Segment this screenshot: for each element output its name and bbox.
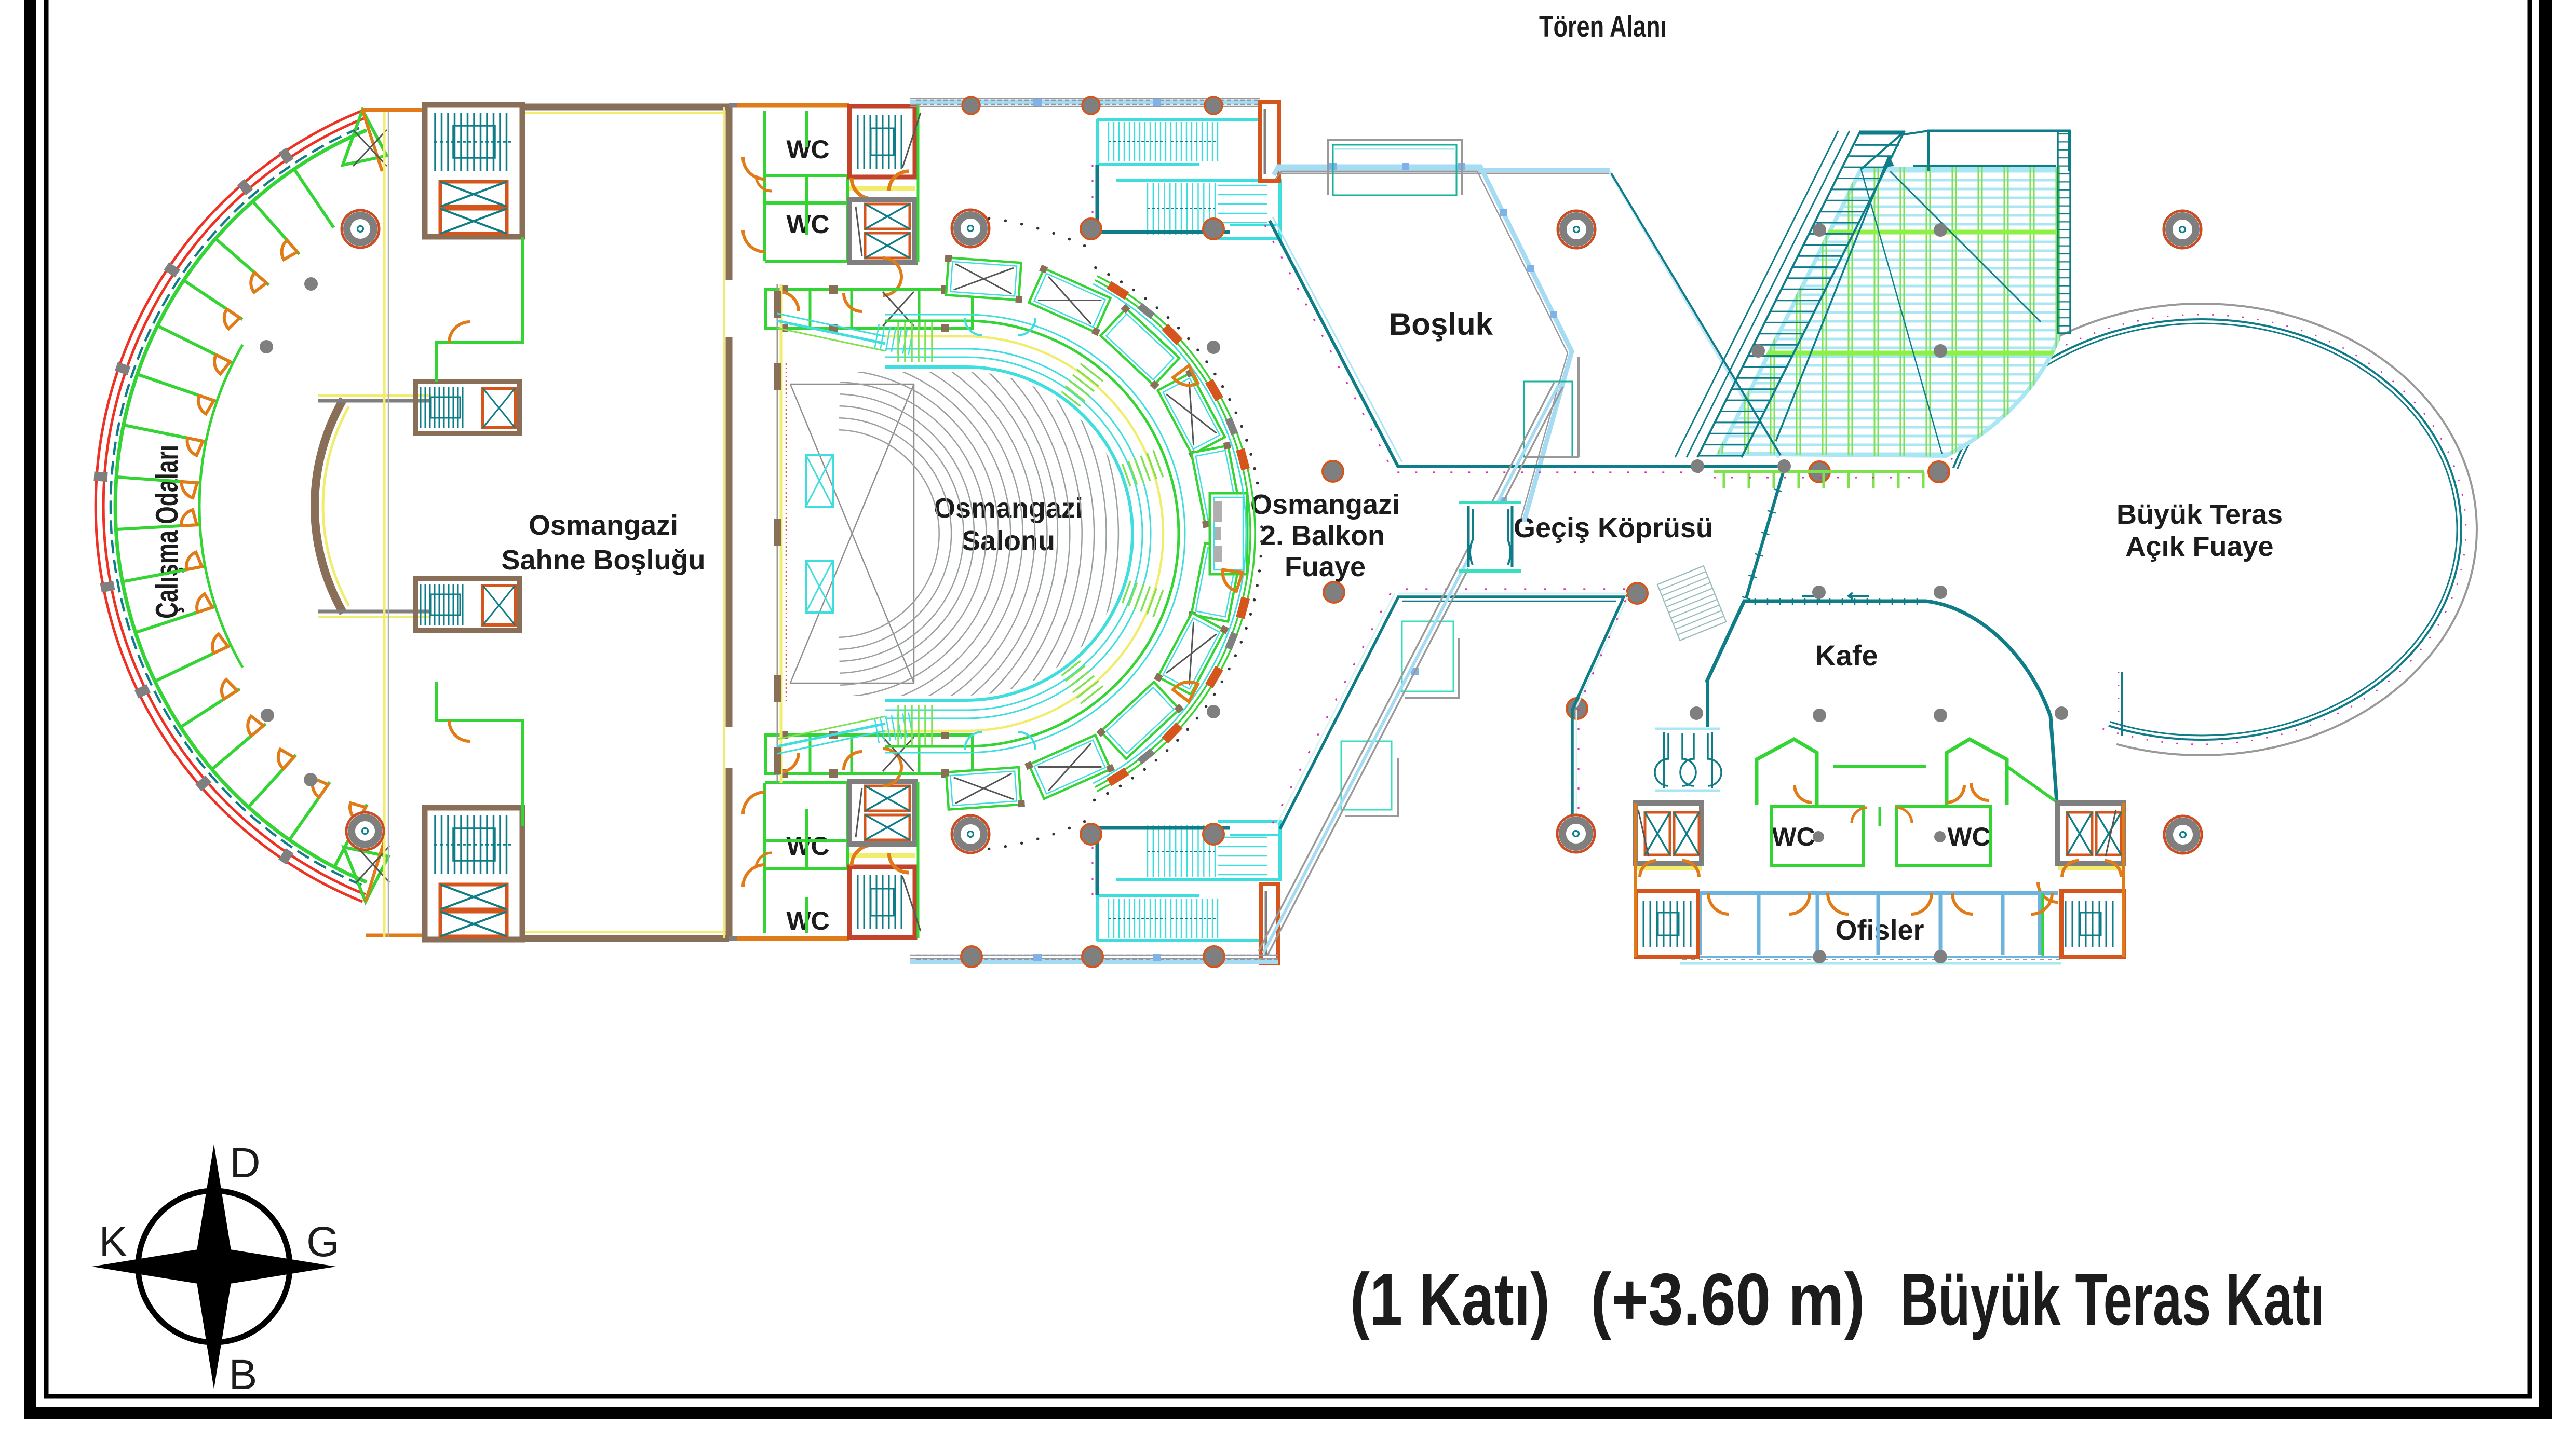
svg-text:Açık Fuaye: Açık Fuaye: [2125, 531, 2273, 562]
svg-text:Boşluk: Boşluk: [1389, 307, 1493, 342]
svg-text:2. Balkon: 2. Balkon: [1260, 520, 1385, 551]
svg-text:Osmangazi: Osmangazi: [1250, 489, 1400, 520]
svg-text:B: B: [229, 1351, 258, 1398]
svg-text:Osmangazi: Osmangazi: [529, 510, 678, 541]
svg-text:WC: WC: [1772, 822, 1815, 851]
svg-text:Kafe: Kafe: [1815, 639, 1878, 672]
svg-text:(+3.60 m): (+3.60 m): [1590, 1258, 1865, 1341]
svg-text:Tören Alanı: Tören Alanı: [1539, 10, 1667, 44]
svg-text:WC: WC: [1947, 822, 1990, 851]
svg-text:Geçiş Köprüsü: Geçiş Köprüsü: [1514, 512, 1713, 543]
svg-text:Büyük Teras Katı: Büyük Teras Katı: [1900, 1258, 2325, 1341]
svg-text:Salonu: Salonu: [962, 525, 1055, 556]
svg-text:G: G: [306, 1218, 340, 1266]
svg-text:(1 Katı): (1 Katı): [1350, 1258, 1550, 1341]
svg-text:Sahne Boşluğu: Sahne Boşluğu: [501, 545, 705, 576]
svg-text:K: K: [99, 1218, 128, 1266]
svg-text:Fuaye: Fuaye: [1285, 551, 1366, 582]
svg-text:Çalışma Odaları: Çalışma Odaları: [150, 445, 184, 619]
svg-text:D: D: [230, 1139, 260, 1187]
svg-text:Büyük Teras: Büyük Teras: [2116, 499, 2283, 530]
